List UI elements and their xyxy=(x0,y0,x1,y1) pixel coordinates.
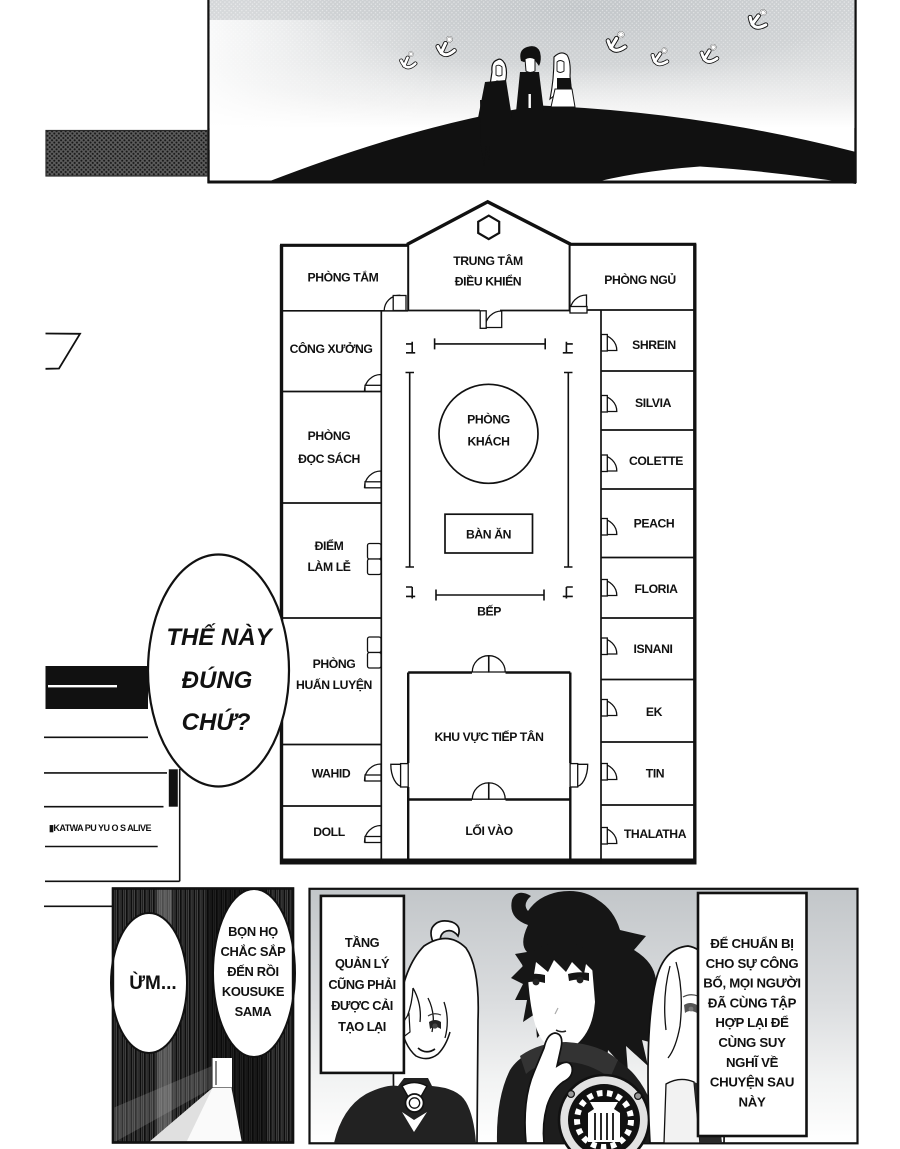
svg-text:SAMA: SAMA xyxy=(235,1004,272,1019)
svg-text:ĐIỂM: ĐIỂM xyxy=(315,538,344,553)
svg-text:BỌN HỌ: BỌN HỌ xyxy=(228,924,278,939)
svg-text:LỐI VÀO: LỐI VÀO xyxy=(465,823,512,838)
svg-text:PHÒNG: PHÒNG xyxy=(467,412,510,427)
svg-text:CÔNG XƯỞNG: CÔNG XƯỞNG xyxy=(290,341,373,356)
svg-text:THẾ NÀY: THẾ NÀY xyxy=(166,623,273,651)
svg-text:COLETTE: COLETTE xyxy=(629,454,683,468)
svg-text:THALATHA: THALATHA xyxy=(624,827,687,841)
svg-text:CŨNG PHẢI: CŨNG PHẢI xyxy=(328,977,395,992)
svg-text:FLORIA: FLORIA xyxy=(635,582,679,596)
svg-text:CHỨ?: CHỨ? xyxy=(182,708,251,736)
svg-text:WAHID: WAHID xyxy=(312,767,351,781)
svg-text:ĐẾN RỒI: ĐẾN RỒI xyxy=(227,964,279,979)
svg-text:NGHĨ VỀ: NGHĨ VỀ xyxy=(726,1055,779,1070)
svg-text:KHU VỰC TIẾP TÂN: KHU VỰC TIẾP TÂN xyxy=(434,729,543,744)
svg-text:ĐỂ CHUẨN BỊ: ĐỂ CHUẨN BỊ xyxy=(710,936,793,951)
svg-text:SILVIA: SILVIA xyxy=(635,396,672,410)
svg-text:ISNANI: ISNANI xyxy=(634,642,673,656)
svg-text:KOUSUKE: KOUSUKE xyxy=(222,984,285,999)
svg-text:HUẤN LUYỆN: HUẤN LUYỆN xyxy=(296,677,372,692)
svg-text:EK: EK xyxy=(646,705,663,719)
svg-text:BỐ, MỌI NGƯỜI: BỐ, MỌI NGƯỜI xyxy=(703,976,800,991)
svg-text:KHÁCH: KHÁCH xyxy=(467,434,509,449)
svg-text:DOLL: DOLL xyxy=(313,825,346,839)
svg-text:PEACH: PEACH xyxy=(634,517,675,531)
svg-text:TẦNG: TẦNG xyxy=(345,935,380,950)
svg-text:PHÒNG: PHÒNG xyxy=(313,656,356,671)
svg-text:ỪM...: ỪM... xyxy=(129,972,176,994)
svg-text:TRUNG TÂM: TRUNG TÂM xyxy=(453,253,523,268)
svg-text:ĐÚNG: ĐÚNG xyxy=(182,666,253,694)
svg-text:SHREIN: SHREIN xyxy=(632,338,676,352)
svg-text:ĐƯỢC CẢI: ĐƯỢC CẢI xyxy=(331,998,393,1013)
svg-text:BÀN ĂN: BÀN ĂN xyxy=(466,527,511,542)
svg-text:ĐỌC SÁCH: ĐỌC SÁCH xyxy=(298,451,360,466)
svg-text:PHÒNG TẮM: PHÒNG TẮM xyxy=(308,270,379,285)
svg-text:ĐÃ CÙNG TẬP: ĐÃ CÙNG TẬP xyxy=(708,995,797,1010)
svg-text:ĐIỀU KHIỂN: ĐIỀU KHIỂN xyxy=(455,274,521,289)
svg-text:NÀY: NÀY xyxy=(739,1094,766,1109)
svg-text:QUẢN LÝ: QUẢN LÝ xyxy=(335,956,390,971)
svg-text:CHẮC SẮP: CHẮC SẮP xyxy=(221,944,287,959)
svg-text:LÀM LỄ: LÀM LỄ xyxy=(308,559,351,574)
svg-text:PHÒNG NGỦ: PHÒNG NGỦ xyxy=(604,272,676,287)
svg-text:BẾP: BẾP xyxy=(477,604,501,619)
svg-text:TIN: TIN xyxy=(646,767,664,781)
svg-text:HỢP LẠI ĐỂ: HỢP LẠI ĐỂ xyxy=(715,1015,789,1030)
svg-text:TẠO LẠI: TẠO LẠI xyxy=(338,1019,386,1034)
svg-text:PHÒNG: PHÒNG xyxy=(308,428,351,443)
svg-text:▮KATWA PU YU O S ALIVE: ▮KATWA PU YU O S ALIVE xyxy=(49,823,152,833)
svg-text:CÙNG SUY: CÙNG SUY xyxy=(718,1035,786,1050)
svg-text:CHUYỆN SAU: CHUYỆN SAU xyxy=(710,1075,794,1090)
svg-text:CHO SỰ CÔNG: CHO SỰ CÔNG xyxy=(706,956,799,971)
